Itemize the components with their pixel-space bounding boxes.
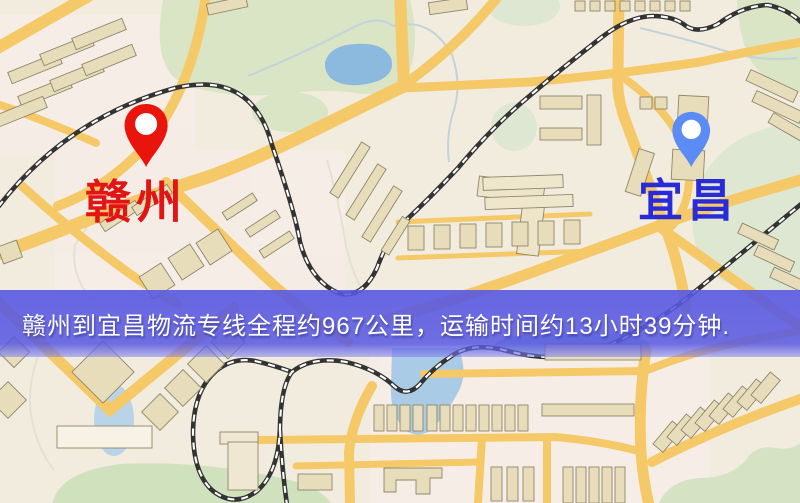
destination-pin-icon[interactable]	[672, 112, 710, 167]
route-info-text: 赣州到宜昌物流专线全程约967公里，运输时间约13小时39分钟.	[22, 306, 730, 341]
origin-pin-hole	[135, 113, 157, 135]
destination-label: 宜昌	[638, 175, 738, 226]
markers-layer: 赣州 宜昌	[0, 0, 800, 503]
route-info-banner: 赣州到宜昌物流专线全程约967公里，运输时间约13小时39分钟.	[0, 290, 800, 357]
origin-label: 赣州	[85, 176, 187, 228]
origin-pin-icon[interactable]	[125, 104, 168, 167]
map-canvas[interactable]: 赣州 宜昌 赣州到宜昌物流专线全程约967公里，运输时间约13小时39分钟.	[0, 0, 800, 503]
destination-pin-hole	[682, 120, 701, 139]
